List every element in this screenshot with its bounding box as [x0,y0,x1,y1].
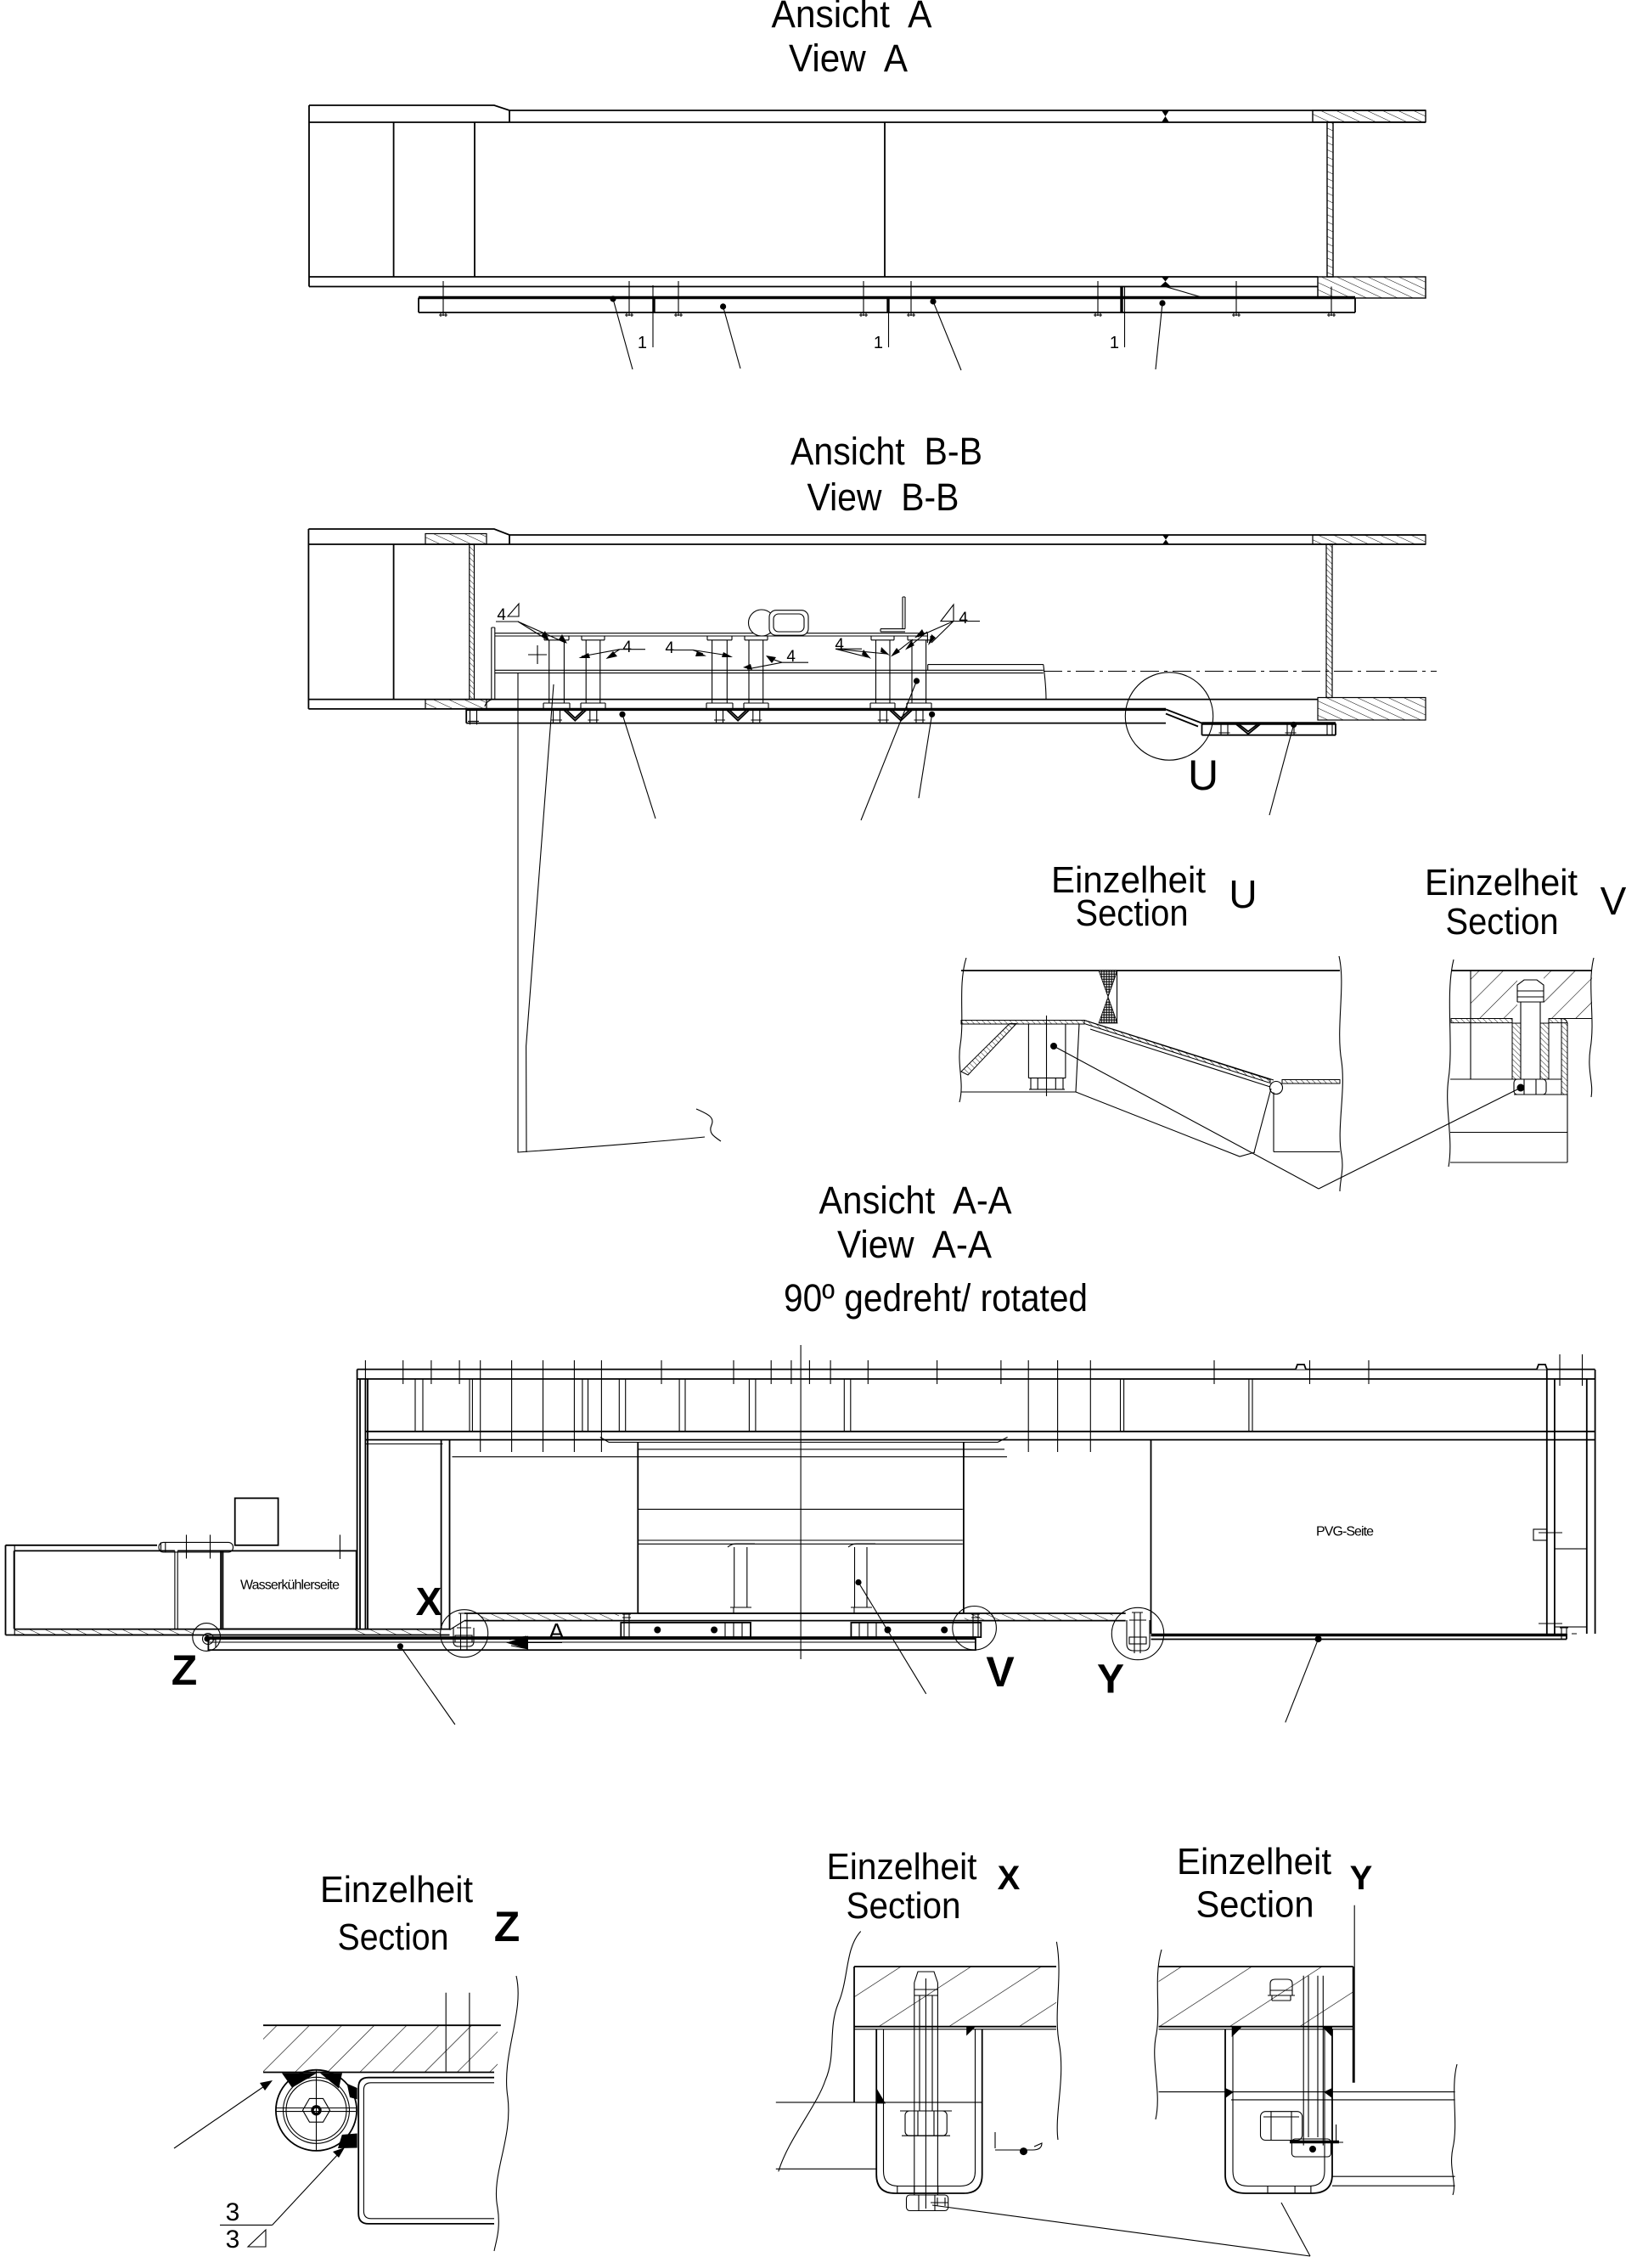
svg-text:4: 4 [959,610,968,627]
svg-text:V: V [986,1648,1015,1696]
svg-text:Z: Z [172,1646,198,1694]
svg-text:Ansicht B-B: Ansicht B-B [790,430,982,473]
svg-text:Einzelheit: Einzelheit [1177,1841,1331,1882]
svg-text:Y: Y [1350,1860,1373,1897]
svg-text:Ansicht A-A: Ansicht A-A [819,1179,1012,1222]
svg-text:1: 1 [638,334,647,352]
svg-text:View A: View A [789,37,908,80]
svg-text:Wasserkühlerseite: Wasserkühlerseite [240,1579,340,1593]
svg-text:Einzelheit: Einzelheit [827,1846,977,1888]
svg-text:1: 1 [874,334,883,352]
svg-text:PVG-Seite: PVG-Seite [1316,1525,1374,1539]
svg-text:U: U [1229,872,1257,916]
svg-text:4: 4 [786,648,796,666]
svg-text:Section: Section [847,1885,961,1927]
svg-text:View B-B: View B-B [807,476,959,519]
svg-text:View A-A: View A-A [837,1223,992,1266]
svg-text:4: 4 [665,639,674,657]
svg-text:Einzelheit: Einzelheit [320,1869,473,1911]
svg-text:1: 1 [1110,334,1119,352]
svg-text:Y: Y [1097,1657,1124,1702]
svg-text:X: X [416,1579,442,1624]
svg-text:90º gedreht/ rotated: 90º gedreht/ rotated [784,1276,1088,1320]
svg-text:4: 4 [622,639,632,656]
svg-text:X: X [998,1860,1021,1897]
svg-text:3: 3 [226,2226,240,2254]
svg-text:Section: Section [338,1916,449,1958]
svg-text:Section: Section [1196,1884,1314,1926]
svg-text:U: U [1188,751,1218,799]
svg-text:Section: Section [1446,901,1559,943]
svg-text:3: 3 [226,2198,240,2226]
svg-text:Einzelheit: Einzelheit [1425,862,1578,903]
svg-text:A: A [549,1618,565,1645]
svg-text:Section: Section [1076,892,1189,934]
svg-text:Z: Z [494,1903,520,1950]
svg-text:V: V [1601,879,1626,923]
svg-text:Ansicht A: Ansicht A [772,0,932,36]
